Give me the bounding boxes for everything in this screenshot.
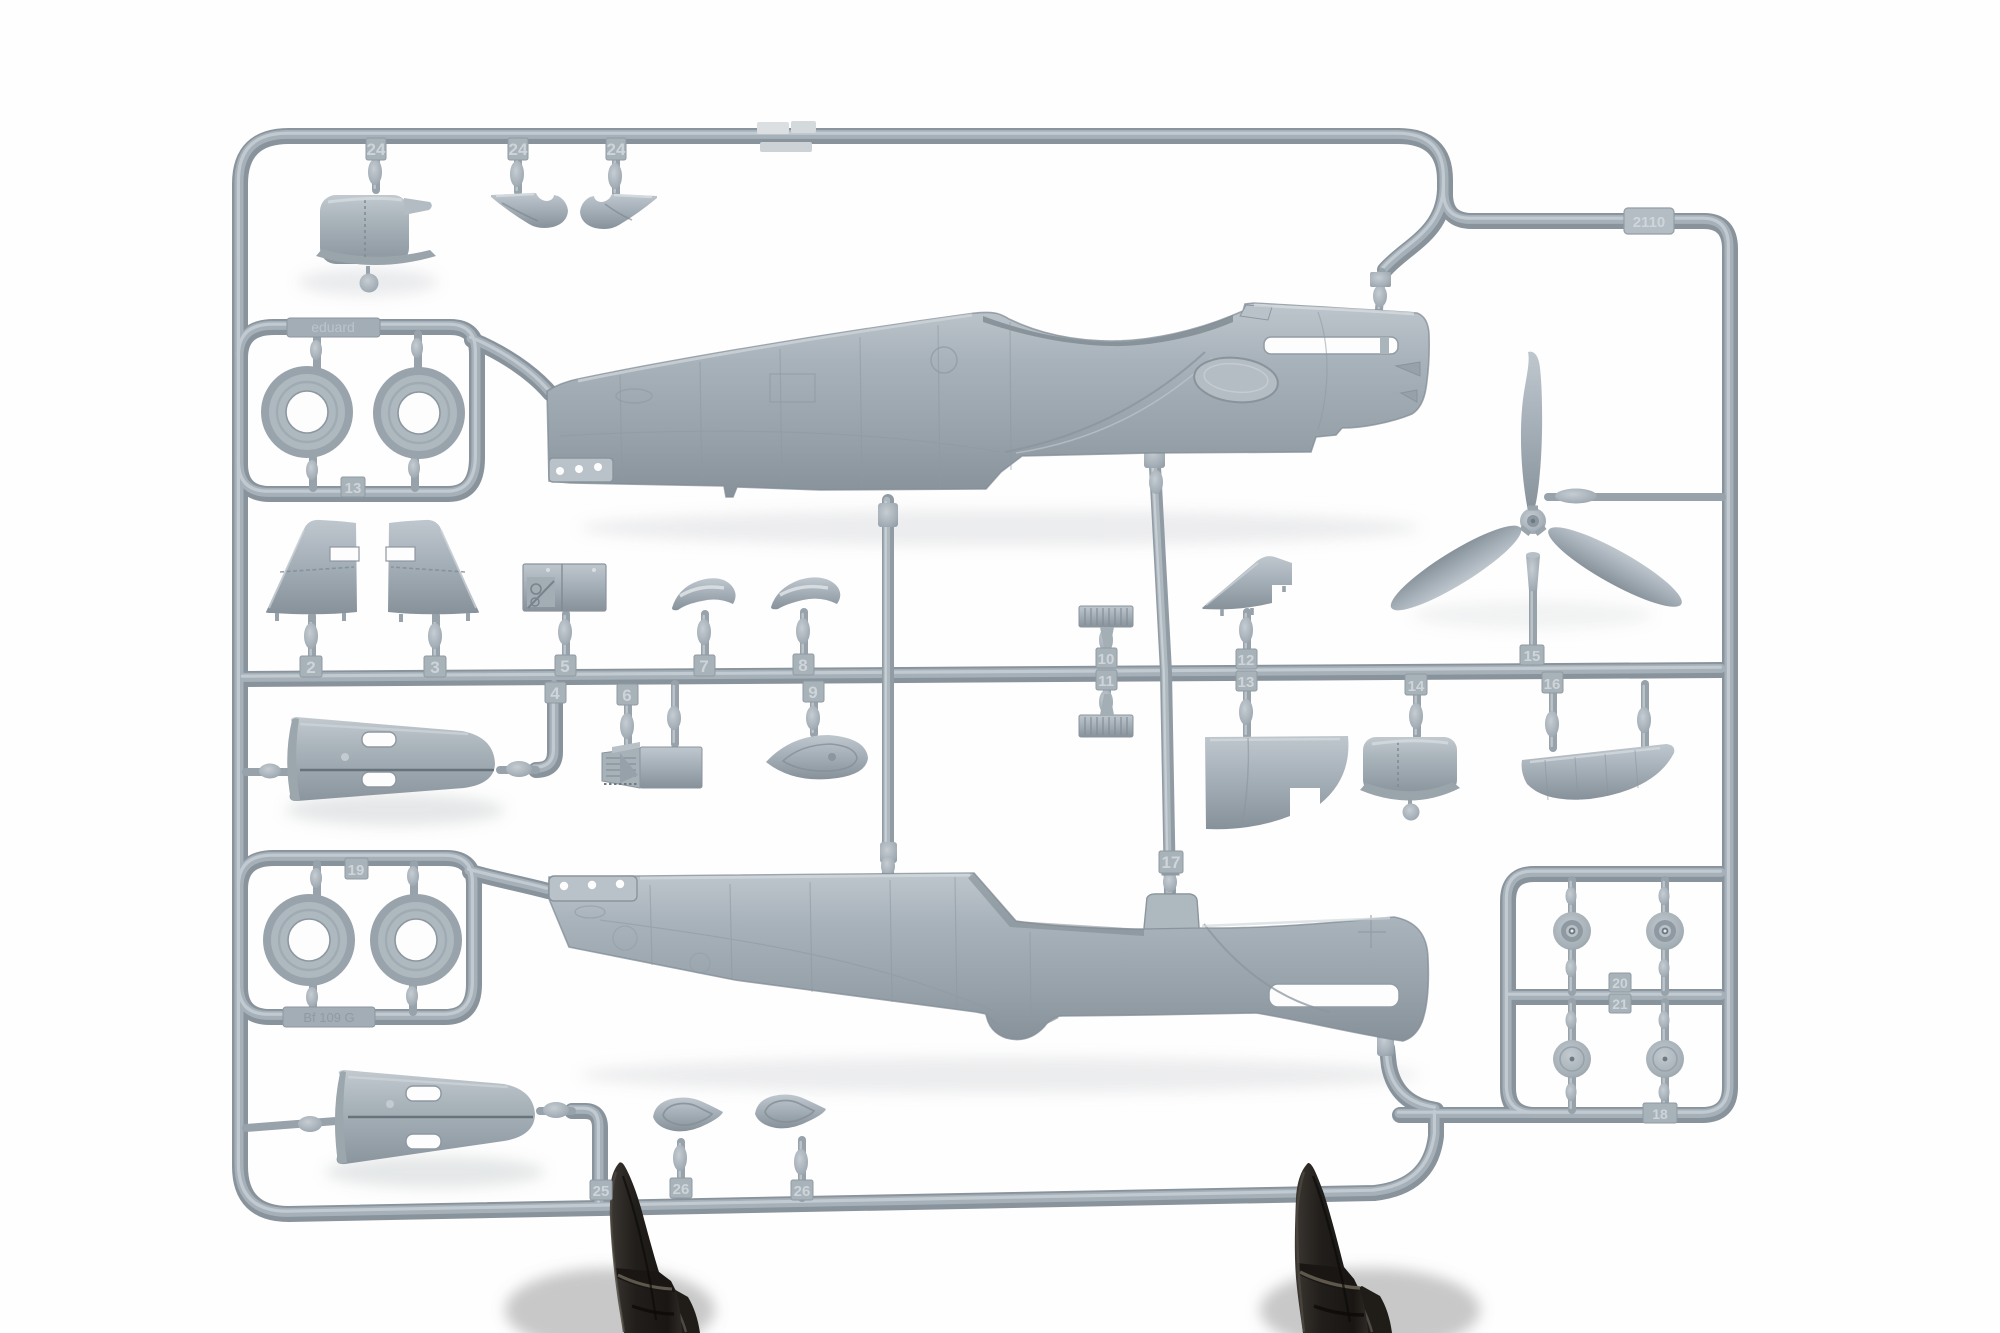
svg-text:24: 24 xyxy=(367,140,386,159)
svg-text:4: 4 xyxy=(550,684,560,703)
svg-text:26: 26 xyxy=(673,1181,690,1198)
svg-text:25: 25 xyxy=(593,1183,610,1200)
svg-text:3: 3 xyxy=(430,658,439,677)
svg-text:6: 6 xyxy=(622,686,631,705)
svg-text:17: 17 xyxy=(1162,853,1181,872)
svg-text:7: 7 xyxy=(699,657,708,676)
svg-text:2110: 2110 xyxy=(1633,214,1666,231)
svg-text:21: 21 xyxy=(1612,996,1628,1012)
svg-text:12: 12 xyxy=(1238,652,1255,669)
svg-text:20: 20 xyxy=(1612,975,1628,991)
svg-text:14: 14 xyxy=(1408,678,1425,695)
svg-text:5: 5 xyxy=(560,657,569,676)
svg-text:8: 8 xyxy=(798,656,807,675)
svg-text:26: 26 xyxy=(794,1183,811,1200)
svg-text:18: 18 xyxy=(1652,1106,1668,1122)
svg-text:16: 16 xyxy=(1544,676,1561,693)
svg-text:13: 13 xyxy=(345,480,362,497)
svg-text:9: 9 xyxy=(808,683,817,702)
svg-text:24: 24 xyxy=(509,140,528,159)
svg-text:19: 19 xyxy=(348,862,365,879)
svg-text:2: 2 xyxy=(306,658,315,677)
svg-text:15: 15 xyxy=(1524,648,1541,665)
svg-text:10: 10 xyxy=(1098,651,1115,668)
svg-text:eduard: eduard xyxy=(311,319,355,335)
svg-text:24: 24 xyxy=(607,140,626,159)
svg-text:11: 11 xyxy=(1098,673,1114,690)
svg-text:Bf 109 G: Bf 109 G xyxy=(303,1010,354,1025)
svg-text:13: 13 xyxy=(1238,674,1255,691)
